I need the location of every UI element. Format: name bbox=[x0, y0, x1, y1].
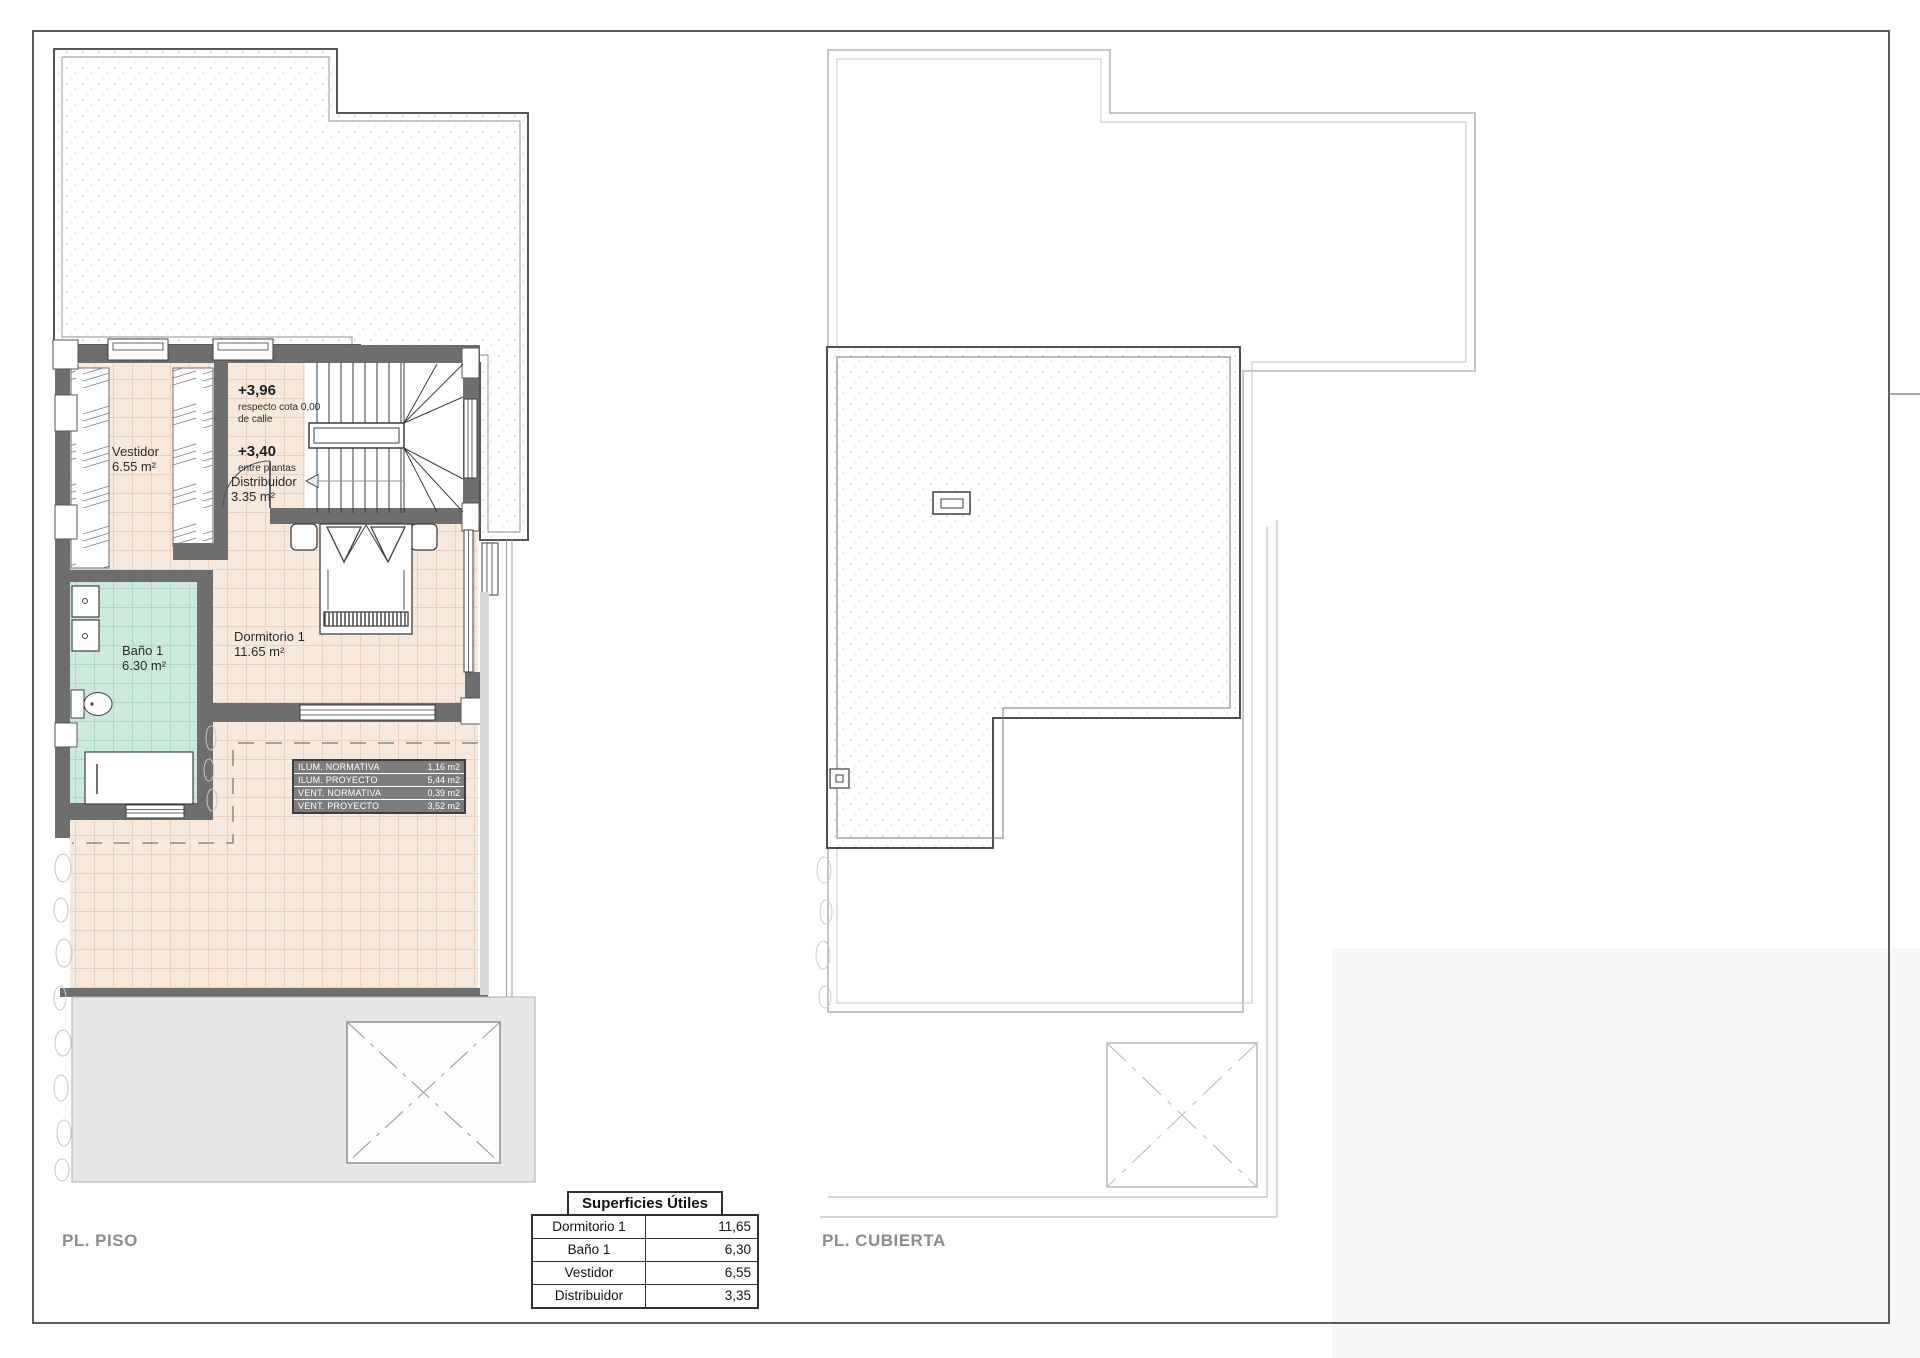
room-label-dormitorio: Dormitorio 1 11.65 m² bbox=[234, 629, 305, 659]
room-area: 6.30 m² bbox=[122, 658, 166, 673]
floorplan-drawing bbox=[0, 0, 1920, 1358]
bathtub bbox=[85, 752, 193, 804]
nightstand-right bbox=[411, 524, 437, 550]
window-bathroom bbox=[126, 805, 184, 818]
glass-wall-bedroom bbox=[464, 530, 473, 672]
table-row: ILUM. NORMATIVA1,16 m2 bbox=[294, 761, 464, 773]
plan-title-piso: PL. PISO bbox=[62, 1231, 138, 1251]
plan-title-cubierta: PL. CUBIERTA bbox=[822, 1231, 946, 1251]
nightstand-left bbox=[291, 524, 317, 550]
room-area: 3.35 m² bbox=[231, 489, 297, 504]
chimney-symbol bbox=[933, 492, 970, 514]
level-mid-note1: entre plantas bbox=[238, 463, 296, 474]
table-row: Baño 16,30 bbox=[533, 1238, 757, 1261]
window-top-1 bbox=[108, 339, 168, 360]
watermark-block bbox=[1332, 948, 1920, 1358]
room-name: Baño 1 bbox=[122, 643, 166, 658]
table-row: Vestidor6,55 bbox=[533, 1261, 757, 1284]
room-label-vestidor: Vestidor 6.55 m² bbox=[112, 444, 159, 474]
window-bedroom-bottom bbox=[300, 705, 435, 720]
areas-table: Dormitorio 111,65 Baño 16,30 Vestidor6,5… bbox=[531, 1214, 759, 1309]
room-name: Distribuidor bbox=[231, 474, 297, 489]
window-top-2 bbox=[213, 339, 273, 360]
room-name: Dormitorio 1 bbox=[234, 629, 305, 644]
table-row: VENT. NORMATIVA0,39 m2 bbox=[294, 786, 464, 799]
sink-2 bbox=[72, 620, 99, 651]
room-area: 6.55 m² bbox=[112, 459, 159, 474]
piso-plan bbox=[53, 49, 535, 1182]
room-label-distribuidor: Distribuidor 3.35 m² bbox=[231, 474, 297, 504]
table-row: Distribuidor3,35 bbox=[533, 1284, 757, 1307]
level-upper-note2: de calle bbox=[238, 414, 272, 425]
stone-texture-right-plan bbox=[816, 857, 832, 1008]
table-row: VENT. PROYECTO3,52 m2 bbox=[294, 799, 464, 812]
roof-drain-symbol bbox=[830, 769, 849, 788]
level-upper-note1: respecto cota 0,00 bbox=[238, 402, 320, 413]
room-name: Vestidor bbox=[112, 444, 159, 459]
room-area: 11.65 m² bbox=[234, 644, 305, 659]
level-mid-value: +3,40 bbox=[238, 443, 276, 460]
piso-patio-x bbox=[347, 1022, 500, 1163]
terrace-parapet bbox=[480, 540, 512, 1013]
table-row: Dormitorio 111,65 bbox=[533, 1216, 757, 1238]
bed-foot-hatch bbox=[324, 612, 408, 626]
toilet bbox=[71, 690, 112, 718]
sink-1 bbox=[72, 586, 99, 617]
illumination-ventilation-table: ILUM. NORMATIVA1,16 m2 ILUM. PROYECTO5,4… bbox=[292, 759, 466, 814]
cubierta-patio-x bbox=[1107, 1043, 1257, 1187]
level-upper-value: +3,96 bbox=[238, 382, 276, 399]
wardrobe-middle bbox=[173, 368, 213, 546]
table-row: ILUM. PROYECTO5,44 m2 bbox=[294, 773, 464, 786]
room-label-banio: Baño 1 6.30 m² bbox=[122, 643, 166, 673]
cubierta-roof-slab bbox=[827, 347, 1240, 848]
window-bedroom-right bbox=[482, 543, 498, 595]
drawing-sheet: Vestidor 6.55 m² +3,96 respecto cota 0,0… bbox=[0, 0, 1920, 1358]
window-stair-right bbox=[464, 399, 477, 478]
